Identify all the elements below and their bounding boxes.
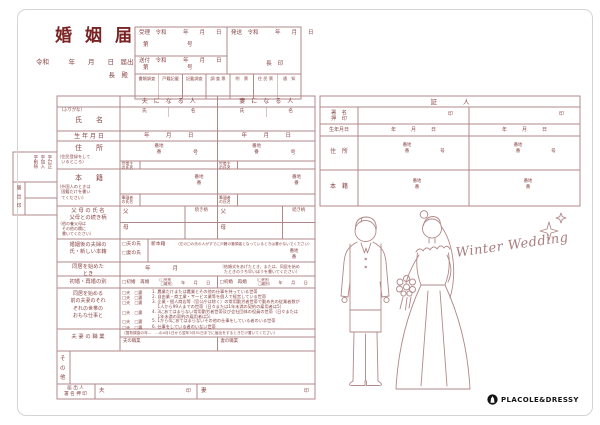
couple-illustration [0,0,600,425]
brand-name: PLACOLE&DRESSY [501,396,579,404]
groom-figure [341,217,389,386]
marriage-registration-form: 婚姻届 令和 年 月 日 届出 長 殿 受理 令和 年 月 日 第 号 発送 令… [0,0,600,425]
brand-logo: PLACOLE&DRESSY [487,394,579,405]
bride-figure [396,211,470,389]
dress-logo-icon [487,394,498,405]
